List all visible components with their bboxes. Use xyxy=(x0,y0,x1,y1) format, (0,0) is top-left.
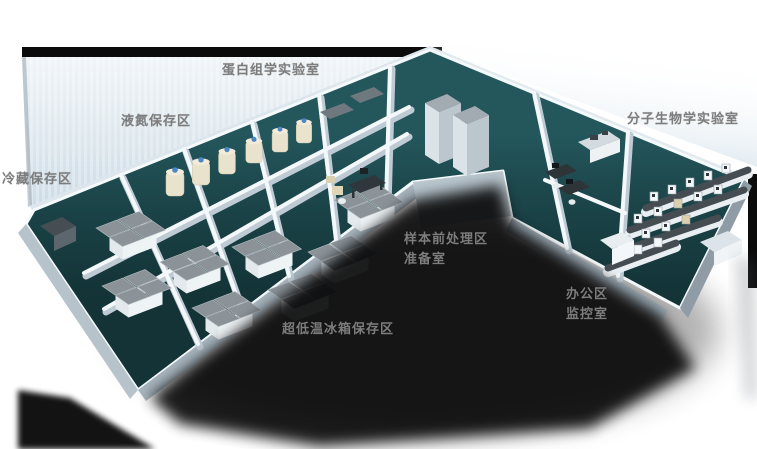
bottom-left-shadow-wedge xyxy=(18,390,155,449)
backdrop-left-black-cap xyxy=(22,47,442,57)
lab-3d-rendering xyxy=(0,0,757,449)
lab-floorplan-stage: 冷藏保存区液氮保存区蛋白组学实验室分子生物学实验室样本前处理区准备室办公区监控室… xyxy=(0,0,757,449)
right-edge-reflection xyxy=(735,255,757,400)
